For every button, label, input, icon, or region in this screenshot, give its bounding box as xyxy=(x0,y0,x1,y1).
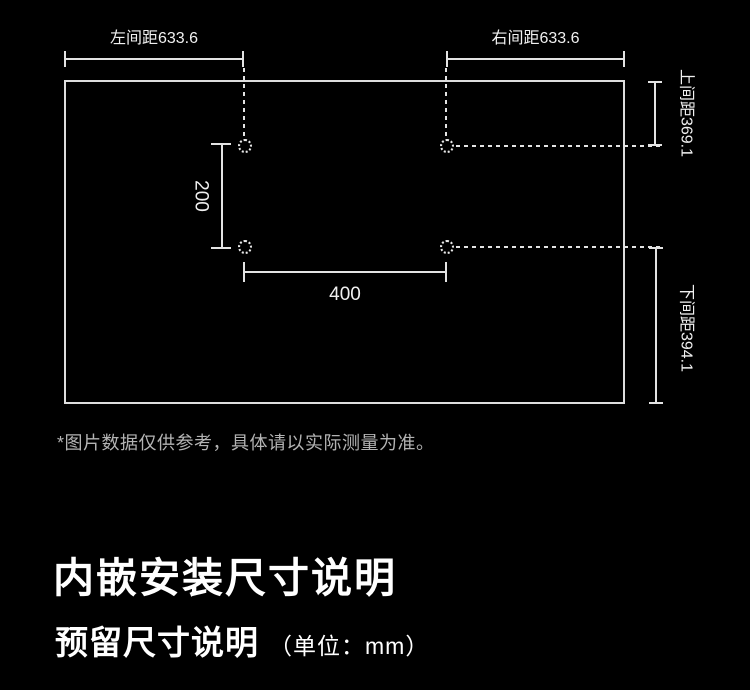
leader-line-dashed xyxy=(445,68,447,138)
mounting-hole-top-right xyxy=(440,139,454,153)
dimension-line-bottom-spacing xyxy=(655,248,657,404)
dimension-tick xyxy=(649,402,663,404)
installation-spec-page: 左间距633.6 右间距633.6 上间距369.1 下间距394.1 xyxy=(0,0,750,690)
dimension-tick xyxy=(242,51,244,67)
disclaimer-footnote: *图片数据仅供参考，具体请以实际测量为准。 xyxy=(57,429,435,455)
dimension-tick xyxy=(211,143,231,145)
leader-line-dashed xyxy=(456,145,660,147)
dimension-tick xyxy=(648,81,662,83)
dim-label-top-spacing: 上间距369.1 xyxy=(676,69,695,157)
mounting-hole-bottom-right xyxy=(440,240,454,254)
dimension-line-top-spacing xyxy=(654,82,656,146)
dimension-tick xyxy=(648,144,662,146)
mounting-hole-top-left xyxy=(238,139,252,153)
dimension-tick xyxy=(446,51,448,67)
section-subtitle-row: 预留尺寸说明 （单位：mm） xyxy=(55,624,429,662)
dimension-line-right-spacing xyxy=(446,58,625,60)
dim-label-left-spacing: 左间距633.6 xyxy=(64,29,244,48)
section-title: 内嵌安装尺寸说明 xyxy=(53,556,397,601)
leader-line-dashed xyxy=(456,246,660,248)
dimension-tick xyxy=(649,247,663,249)
dim-label-right-spacing: 右间距633.6 xyxy=(446,29,625,48)
dimension-line-hole-vertical xyxy=(221,144,223,249)
unit-note: （单位：mm） xyxy=(269,627,429,661)
dimension-tick xyxy=(445,262,447,282)
dimension-line-hole-horizontal xyxy=(244,271,446,273)
dim-label-hole-vertical: 200 xyxy=(190,180,211,212)
dim-label-bottom-spacing: 下间距394.1 xyxy=(676,284,695,372)
dimension-line-left-spacing xyxy=(64,58,244,60)
dimension-tick xyxy=(64,51,66,67)
section-subtitle: 预留尺寸说明 xyxy=(55,624,259,662)
dimension-tick xyxy=(243,262,245,282)
panel-outline xyxy=(64,80,625,404)
mounting-hole-bottom-left xyxy=(238,240,252,254)
dimension-tick xyxy=(623,51,625,67)
leader-line-dashed xyxy=(243,68,245,138)
dim-label-hole-horizontal: 400 xyxy=(244,285,446,306)
dimension-tick xyxy=(211,247,231,249)
